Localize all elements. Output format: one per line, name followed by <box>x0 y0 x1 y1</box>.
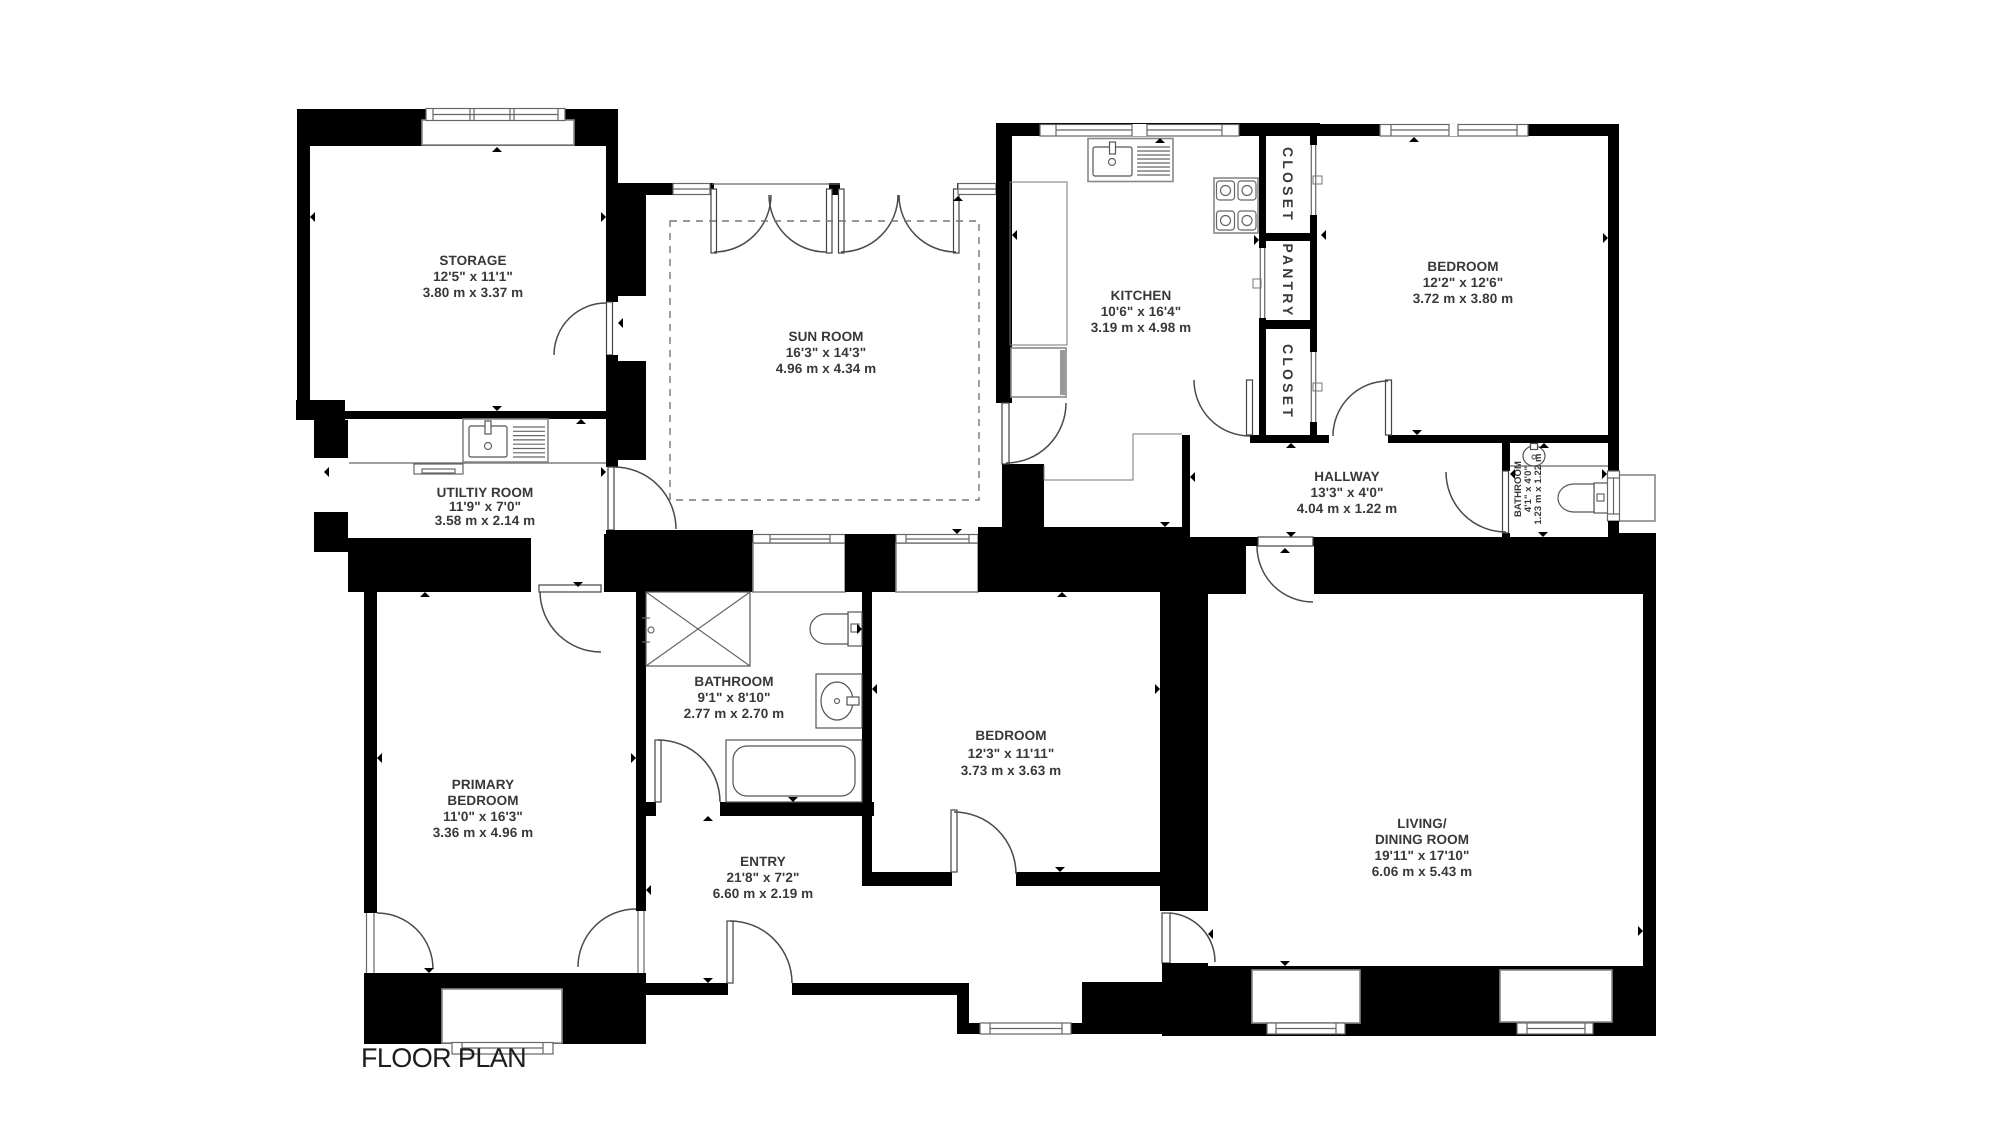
svg-text:11'9" x 7'0": 11'9" x 7'0" <box>449 499 521 514</box>
svg-text:CLOSET: CLOSET <box>1280 344 1296 420</box>
svg-text:HALLWAY: HALLWAY <box>1314 469 1379 484</box>
svg-text:16'3" x 14'3": 16'3" x 14'3" <box>786 345 867 360</box>
svg-text:STORAGE: STORAGE <box>439 253 506 268</box>
svg-text:DINING ROOM: DINING ROOM <box>1375 832 1469 847</box>
svg-text:12'2" x 12'6": 12'2" x 12'6" <box>1423 275 1504 290</box>
svg-text:10'6" x 16'4": 10'6" x 16'4" <box>1101 304 1182 319</box>
svg-text:BEDROOM: BEDROOM <box>975 728 1046 743</box>
svg-text:3.36 m x 4.96 m: 3.36 m x 4.96 m <box>433 825 534 840</box>
svg-text:3.80 m x 3.37 m: 3.80 m x 3.37 m <box>423 285 524 300</box>
svg-text:3.58 m x 2.14 m: 3.58 m x 2.14 m <box>435 513 536 528</box>
svg-text:BATHROOM: BATHROOM <box>694 674 773 689</box>
svg-text:2.77 m x 2.70 m: 2.77 m x 2.70 m <box>684 706 785 721</box>
svg-text:ENTRY: ENTRY <box>740 854 786 869</box>
svg-text:19'11" x 17'10": 19'11" x 17'10" <box>1374 848 1469 863</box>
svg-text:4.96 m x 4.34 m: 4.96 m x 4.34 m <box>776 361 877 376</box>
svg-text:6.06 m x 5.43 m: 6.06 m x 5.43 m <box>1372 864 1473 879</box>
svg-text:3.73 m x 3.63 m: 3.73 m x 3.63 m <box>961 763 1062 778</box>
svg-text:12'3" x 11'11": 12'3" x 11'11" <box>968 746 1055 761</box>
svg-text:3.72 m x 3.80 m: 3.72 m x 3.80 m <box>1413 291 1514 306</box>
svg-text:UTILTIY ROOM: UTILTIY ROOM <box>437 485 534 500</box>
svg-text:PRIMARY: PRIMARY <box>452 777 514 792</box>
svg-text:CLOSET: CLOSET <box>1280 147 1296 223</box>
svg-text:SUN ROOM: SUN ROOM <box>788 329 863 344</box>
svg-text:PANTRY: PANTRY <box>1280 243 1296 318</box>
svg-text:FLOOR PLAN: FLOOR PLAN <box>361 1043 526 1073</box>
svg-text:LIVING/: LIVING/ <box>1397 816 1447 831</box>
svg-text:6.60 m x 2.19 m: 6.60 m x 2.19 m <box>713 886 814 901</box>
svg-text:KITCHEN: KITCHEN <box>1111 288 1172 303</box>
svg-text:4.04 m x 1.22 m: 4.04 m x 1.22 m <box>1297 501 1398 516</box>
svg-text:13'3" x 4'0": 13'3" x 4'0" <box>1311 485 1384 500</box>
svg-text:12'5" x 11'1": 12'5" x 11'1" <box>433 269 513 284</box>
svg-text:3.19 m x 4.98 m: 3.19 m x 4.98 m <box>1091 320 1192 335</box>
svg-text:BEDROOM: BEDROOM <box>447 793 518 808</box>
svg-text:11'0" x 16'3": 11'0" x 16'3" <box>443 809 523 824</box>
svg-text:1.23 m x 1.22 m: 1.23 m x 1.22 m <box>1533 453 1544 524</box>
svg-text:9'1" x 8'10": 9'1" x 8'10" <box>698 690 771 705</box>
svg-text:21'8" x 7'2": 21'8" x 7'2" <box>727 870 800 885</box>
svg-text:BEDROOM: BEDROOM <box>1427 259 1498 274</box>
